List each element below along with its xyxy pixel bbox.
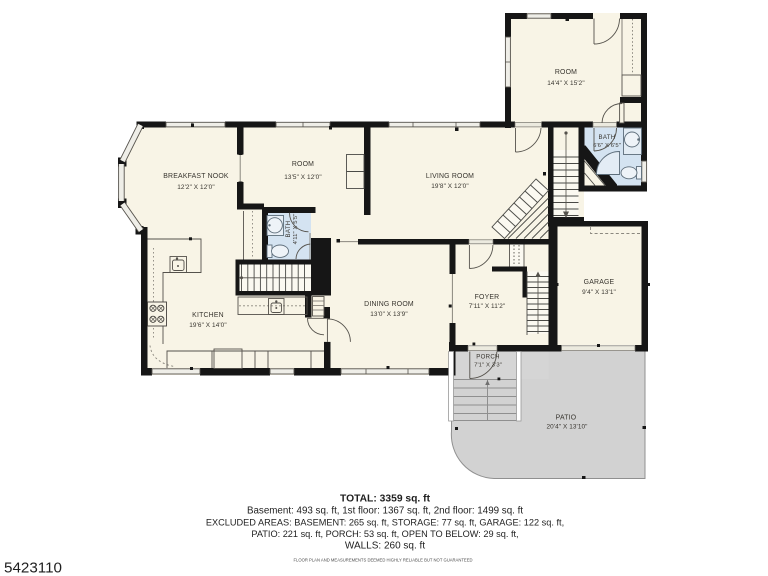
svg-text:FOYER: FOYER — [475, 294, 500, 301]
svg-text:7'1" X 3'3": 7'1" X 3'3" — [474, 363, 502, 369]
svg-text:TOTAL: 3359 sq. ft: TOTAL: 3359 sq. ft — [340, 494, 431, 505]
svg-text:BATH: BATH — [285, 221, 292, 238]
svg-text:19'6" X 14'0": 19'6" X 14'0" — [189, 322, 226, 329]
svg-text:EXCLUDED AREAS: BASEMENT: 265: EXCLUDED AREAS: BASEMENT: 265 sq. ft, ST… — [206, 518, 564, 528]
svg-text:WALLS: 260 sq. ft: WALLS: 260 sq. ft — [345, 541, 425, 552]
svg-text:BATH: BATH — [599, 134, 616, 141]
svg-text:DINING ROOM: DINING ROOM — [364, 301, 414, 308]
svg-text:BREAKFAST NOOK: BREAKFAST NOOK — [163, 173, 229, 180]
svg-text:5423110: 5423110 — [4, 560, 62, 576]
svg-text:PATIO: PATIO — [556, 415, 577, 422]
svg-text:4'11" X 5'5": 4'11" X 5'5" — [293, 214, 299, 245]
svg-text:PATIO: 221 sq. ft, PORCH: 53 s: PATIO: 221 sq. ft, PORCH: 53 sq. ft, OPE… — [251, 529, 518, 539]
svg-text:20'4" X 13'10": 20'4" X 13'10" — [546, 424, 587, 431]
svg-text:19'8" X 12'0": 19'8" X 12'0" — [431, 183, 468, 190]
svg-text:13'5" X 12'0": 13'5" X 12'0" — [284, 174, 321, 181]
svg-text:GARAGE: GARAGE — [584, 279, 615, 286]
svg-text:FLOOR PLAN AND MEASUREMENTS DE: FLOOR PLAN AND MEASUREMENTS DEEMED HIGHL… — [293, 558, 472, 563]
svg-text:12'2" X 12'0": 12'2" X 12'0" — [177, 184, 214, 191]
svg-text:PORCH: PORCH — [476, 354, 500, 361]
svg-text:ROOM: ROOM — [292, 161, 314, 168]
svg-text:KITCHEN: KITCHEN — [192, 312, 224, 319]
svg-text:9'4" X 13'1": 9'4" X 13'1" — [582, 289, 616, 296]
svg-text:14'4" X 15'2": 14'4" X 15'2" — [547, 80, 584, 87]
svg-text:13'0" X 13'9": 13'0" X 13'9" — [370, 311, 407, 318]
svg-text:LIVING ROOM: LIVING ROOM — [426, 173, 474, 180]
svg-text:ROOM: ROOM — [555, 69, 577, 76]
svg-text:7'11" X 11'2": 7'11" X 11'2" — [469, 303, 505, 310]
svg-text:Basement: 493 sq. ft, 1st floo: Basement: 493 sq. ft, 1st floor: 1367 sq… — [247, 506, 523, 517]
svg-text:6'6" X 6'5": 6'6" X 6'5" — [593, 143, 621, 149]
